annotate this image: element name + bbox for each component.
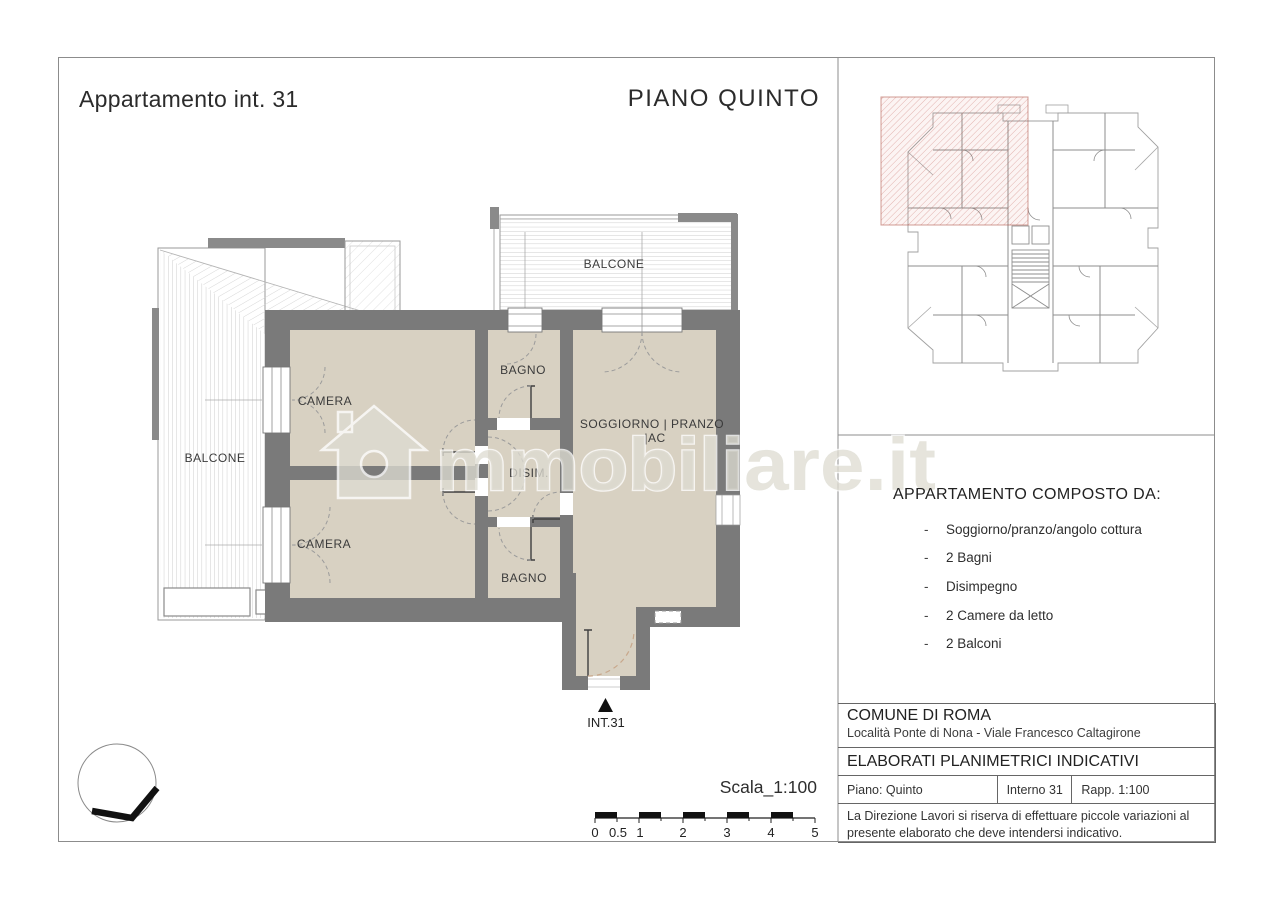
interno-cell: Interno 31 <box>998 776 1073 803</box>
composition-list: - Soggiorno/pranzo/angolo cottura - 2 Ba… <box>924 515 1142 658</box>
table-row-disclaimer: La Direzione Lavori si riserva di effett… <box>838 804 1215 842</box>
scale-tick: 2 <box>679 825 686 840</box>
label-camera-bottom: CAMERA <box>297 537 351 551</box>
scale-tick: 4 <box>767 825 774 840</box>
floor-title: PIANO QUINTO <box>560 85 820 113</box>
parapet-bar <box>208 238 345 248</box>
scale-tick-labels: 0 0.5 1 2 3 4 5 <box>591 825 818 840</box>
table-row-comune: COMUNE DI ROMA Località Ponte di Nona - … <box>838 704 1215 748</box>
elaborati-label: ELABORATI PLANIMETRICI INDICATIVI <box>847 753 1139 771</box>
scale-tick: 3 <box>723 825 730 840</box>
room-bagno-bottom <box>488 527 560 600</box>
orientation-circle-icon <box>78 744 156 822</box>
bullet-dash: - <box>924 550 946 565</box>
entrance-arrow-icon <box>598 698 613 712</box>
keyplan-highlight <box>881 97 1028 225</box>
keyplan-thumbnail <box>881 97 1158 371</box>
list-item-label: 2 Balconi <box>946 636 1002 651</box>
list-item: - 2 Balconi <box>924 629 1142 658</box>
list-item: - Disimpegno <box>924 572 1142 601</box>
list-item-label: Disimpegno <box>946 579 1017 594</box>
label-bagno-bottom: BAGNO <box>501 571 547 585</box>
entry-threshold <box>588 676 620 690</box>
label-balcone-top: BALCONE <box>584 257 645 271</box>
opening-dashed <box>655 611 681 623</box>
keyplan-core <box>1012 226 1049 308</box>
comune-label: COMUNE DI ROMA <box>847 707 1207 725</box>
list-item: - Soggiorno/pranzo/angolo cottura <box>924 515 1142 544</box>
scale-tick: 1 <box>636 825 643 840</box>
bullet-dash: - <box>924 579 946 594</box>
room-ingresso <box>576 607 636 676</box>
title-block-table: COMUNE DI ROMA Località Ponte di Nona - … <box>838 703 1216 843</box>
list-item: - 2 Camere da letto <box>924 601 1142 630</box>
label-camera-top: CAMERA <box>298 394 352 408</box>
balcony-planter <box>164 588 250 616</box>
composition-heading: APPARTAMENTO COMPOSTO DA: <box>848 486 1206 504</box>
localita-label: Località Ponte di Nona - Viale Francesco… <box>847 726 1207 740</box>
bullet-dash: - <box>924 522 946 537</box>
scale-bar: Scala_1:100 0 0.5 1 2 3 <box>591 777 818 840</box>
scale-label: Scala_1:100 <box>720 777 818 798</box>
disclaimer-text: La Direzione Lavori si riserva di effett… <box>847 809 1189 840</box>
entrance-label: INT.31 <box>587 715 625 730</box>
rapporto-cell: Rapp. 1:100 <box>1072 776 1215 803</box>
scale-tick: 0.5 <box>609 825 627 840</box>
label-bagno-top: BAGNO <box>500 363 546 377</box>
window-camera-top <box>263 367 290 433</box>
scale-tick: 5 <box>811 825 818 840</box>
page-title: Appartamento int. 31 <box>79 86 299 113</box>
bullet-dash: - <box>924 636 946 651</box>
scale-tick: 0 <box>591 825 598 840</box>
entrance-marker: INT.31 <box>587 698 625 730</box>
piano-cell: Piano: Quinto <box>838 776 998 803</box>
orientation-arrow-icon <box>92 788 157 818</box>
list-item-label: Soggiorno/pranzo/angolo cottura <box>946 522 1142 537</box>
window-bagno-top <box>508 308 542 332</box>
window-camera-bottom <box>263 507 290 583</box>
list-item: - 2 Bagni <box>924 544 1142 573</box>
plan-sheet: { "header": { "title": "Appartamento int… <box>0 0 1273 900</box>
label-balcone-left: BALCONE <box>185 451 246 465</box>
table-row-elaborati: ELABORATI PLANIMETRICI INDICATIVI <box>838 748 1215 776</box>
list-item-label: 2 Bagni <box>946 550 992 565</box>
bullet-dash: - <box>924 608 946 623</box>
table-row-details: Piano: Quinto Interno 31 Rapp. 1:100 <box>838 776 1215 804</box>
orientation-indicator <box>78 744 157 822</box>
list-item-label: 2 Camere da letto <box>946 608 1053 623</box>
